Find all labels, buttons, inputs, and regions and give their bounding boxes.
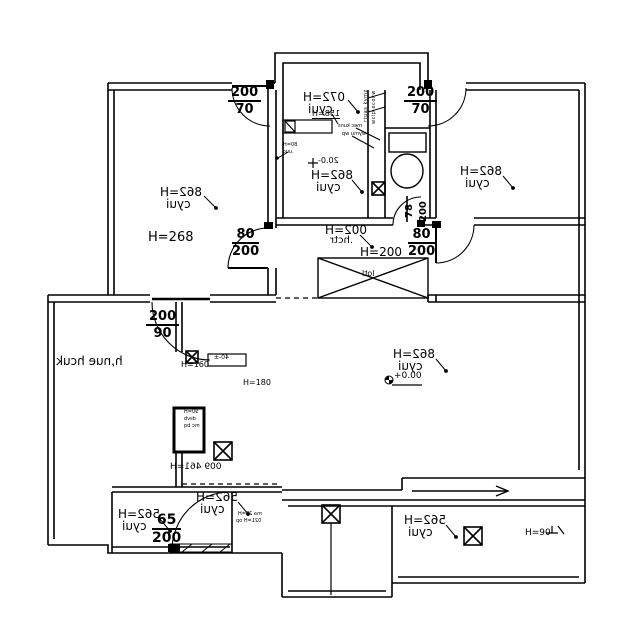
pillar-note-2: dsvb: [184, 417, 196, 422]
pillar-note-1: 90=H: [184, 410, 198, 415]
door-dim-height: 90: [146, 326, 179, 341]
hall-name: .hctr: [330, 236, 353, 247]
vent-note-2: wcip ecokw: [371, 90, 377, 124]
bottom-right-name: cyui: [408, 526, 433, 539]
bath-tiny-note-1: mec kuns: [338, 124, 362, 129]
bath-door-dim-height: 200: [418, 201, 429, 222]
room-upper-left-height-plain: H=268: [148, 231, 193, 245]
hall-height-plain: H=200: [360, 246, 402, 259]
door-leaf-blobs: [168, 80, 441, 552]
bottom-center-name: cyui: [200, 503, 225, 516]
pillar-note-3: mc bq: [184, 424, 200, 429]
lobby-tiny-note-1: 80=H: [283, 143, 297, 148]
vent-note-1: rtuas kymz: [363, 89, 369, 122]
direction-arrow: [412, 486, 508, 496]
bottom-center-note-1: ma 25=H: [238, 512, 262, 517]
window-dim-top-left: 200 70: [228, 85, 261, 117]
window-dim-top-right: 200 70: [404, 85, 437, 117]
closet-name: cyui: [122, 520, 147, 533]
door-dim-kitchen: 200 90: [146, 309, 179, 341]
floor-plan-canvas: 200 70 200 70 80 200 80 200 200 90 65 20…: [0, 0, 633, 643]
kitchen-h160: H=160: [181, 361, 209, 369]
lobby-tiny-note-2: .uuc: [283, 150, 294, 155]
window-dim-width: 200: [228, 85, 261, 102]
lobby-name: cyui: [316, 181, 341, 194]
door-dim-height: 200: [232, 244, 259, 259]
room-right-name: cyui: [465, 177, 490, 190]
lobby-level-mark: 20.0-: [318, 157, 339, 165]
kitchen-h180: H=180: [243, 379, 271, 387]
door-dim-width: 80: [408, 227, 435, 244]
h90-label: H=90: [525, 529, 551, 538]
living-level-mark: 00.0+: [394, 372, 422, 381]
window-dim-sill: 70: [404, 102, 437, 117]
kitchen-name: h,nue hcuk: [56, 355, 123, 368]
dashed-lines: [182, 298, 318, 484]
door-dim-height: 200: [152, 530, 181, 546]
kitchen-top-note: 40-±: [214, 355, 229, 361]
door-dim-upper-left: 80 200: [232, 227, 259, 259]
bathroom-fixtures: [389, 133, 426, 188]
door-arcs: [152, 86, 474, 550]
niche-height: 158=H: [312, 110, 340, 119]
door-dim-width: 80: [232, 227, 259, 244]
lobby-shelf: [283, 120, 332, 133]
bath-tiny-note-2: wymu wp: [342, 132, 366, 137]
bottom-center-note-2: 021=H op: [236, 519, 261, 524]
kitchen-h164: 009 461=H: [170, 463, 222, 472]
bath-door-dim-width: 78: [404, 204, 415, 218]
door-dim-height: 200: [408, 244, 435, 259]
window-dim-sill: 70: [228, 102, 261, 117]
window-dim-width: 200: [404, 85, 437, 102]
door-dim-upper-right: 80 200: [408, 227, 435, 259]
door-dim-width: 200: [146, 309, 179, 326]
shaft-label: lotl: [362, 270, 374, 278]
room-upper-left-name: cyui: [166, 198, 191, 211]
